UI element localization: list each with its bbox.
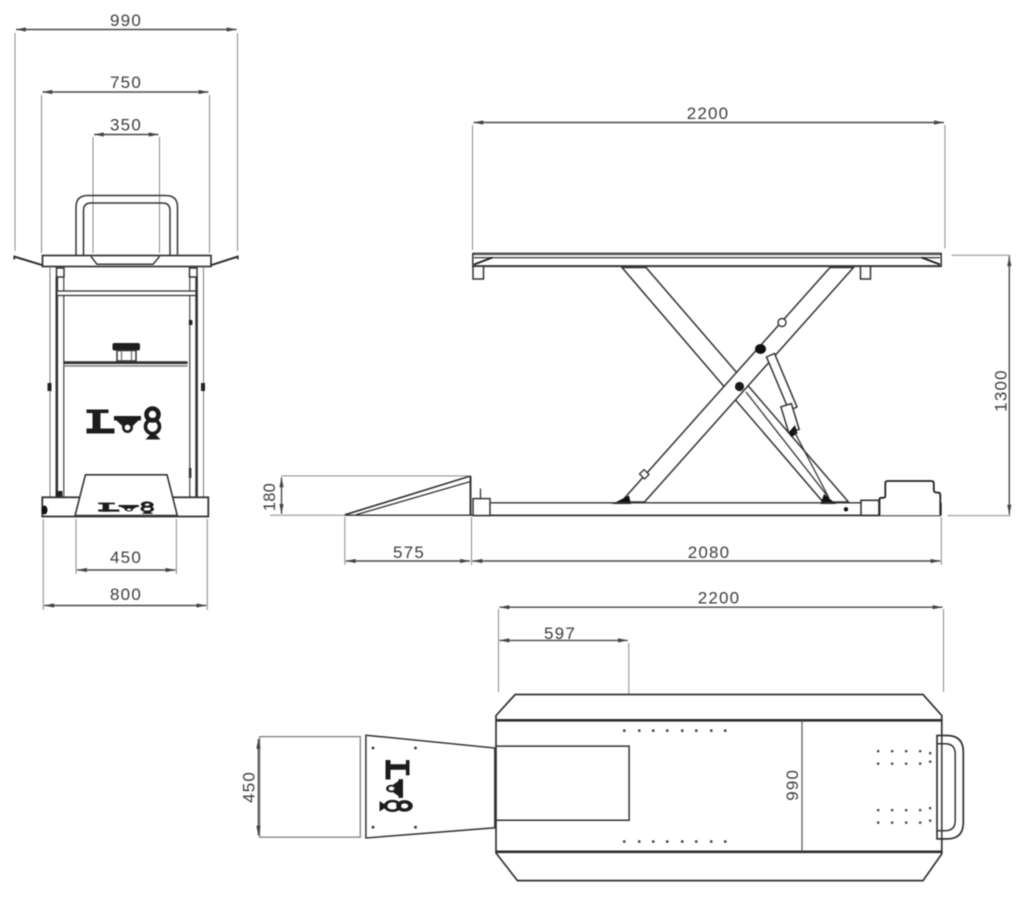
- svg-text:450: 450: [110, 548, 142, 567]
- svg-text:450: 450: [240, 771, 259, 803]
- svg-text:750: 750: [110, 73, 142, 92]
- svg-text:990: 990: [110, 11, 142, 30]
- svg-text:1300: 1300: [992, 369, 1011, 412]
- svg-text:597: 597: [544, 624, 576, 643]
- svg-text:2200: 2200: [698, 589, 741, 608]
- svg-text:2200: 2200: [687, 104, 730, 123]
- svg-text:990: 990: [783, 769, 802, 801]
- svg-text:575: 575: [393, 543, 425, 562]
- svg-text:800: 800: [110, 585, 142, 604]
- svg-text:2080: 2080: [688, 543, 731, 562]
- svg-text:350: 350: [110, 116, 142, 135]
- svg-text:180: 180: [261, 483, 279, 511]
